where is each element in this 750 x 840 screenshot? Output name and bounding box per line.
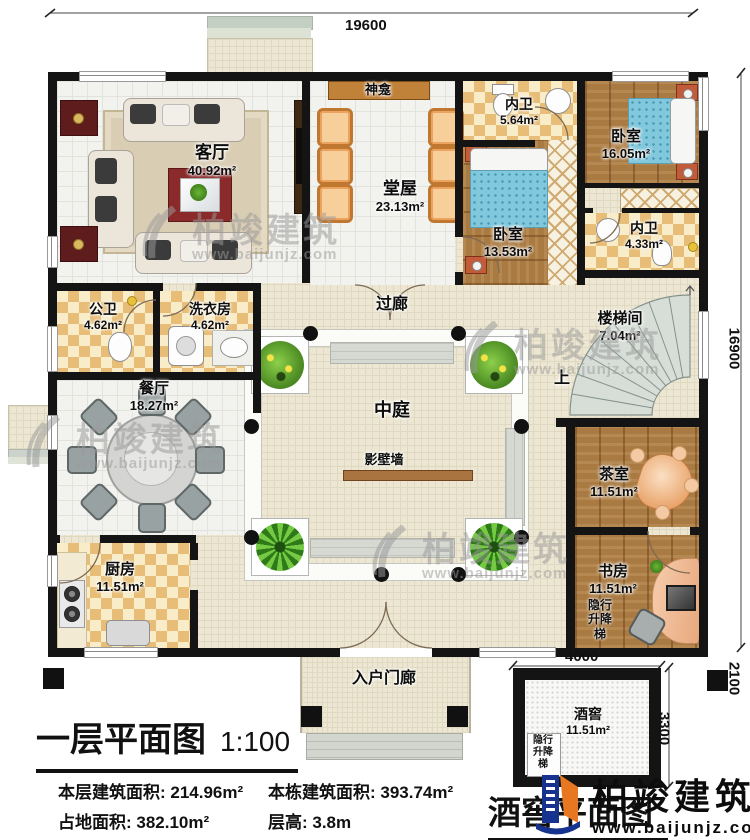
room-label-public-bath: 公卫 4.62m²: [67, 301, 139, 332]
room-name: 餐厅: [112, 380, 196, 398]
room-area: 11.51m²: [577, 581, 649, 596]
room-area: 4.62m²: [168, 318, 252, 332]
room-label-cellar: 酒窖 11.51m²: [550, 706, 626, 737]
room-area: 5.64m²: [483, 113, 555, 127]
room-label-hall: 堂屋 23.13m²: [345, 179, 455, 214]
elevator-line: 升降: [527, 747, 559, 759]
room-label-stairwell: 楼梯间 7.04m²: [580, 310, 660, 343]
brand-logo-url: www.baijunjz.com: [592, 818, 750, 838]
room-area: 13.53m²: [470, 244, 546, 259]
room-label-bedroom-right: 卧室 16.05m²: [588, 128, 664, 161]
room-area: 4.33m²: [608, 237, 680, 251]
room-area: 18.27m²: [112, 398, 196, 413]
room-label-bedroom-mid: 卧室 13.53m²: [470, 226, 546, 259]
room-name: 内卫: [608, 220, 680, 237]
brand-logo-text: 柏竣建筑: [592, 768, 750, 820]
room-name: 酒窖: [550, 706, 626, 723]
room-name: 公卫: [67, 301, 139, 318]
up-text: 上: [550, 370, 574, 389]
floor-plan-canvas: 客厅 40.92m² 神龛 堂屋 23.13m² 内卫 5.64m² 卧室 16…: [0, 0, 750, 840]
room-name: 过廊: [356, 296, 428, 315]
elevator-label-cellar: 隐行 升降 梯: [527, 735, 559, 771]
dim-top: 19600: [345, 17, 387, 34]
room-label-living: 客厅 40.92m²: [162, 143, 262, 178]
stat-total-area: 本栋建筑面积: 393.74m²: [268, 778, 453, 803]
room-name: 中庭: [356, 400, 428, 421]
page-title: 一层平面图: [36, 712, 206, 761]
room-label-screen-wall: 影壁墙: [345, 452, 423, 467]
stat-floor-height: 层高: 3.8m: [268, 808, 351, 833]
elevator-line: 隐行: [584, 598, 616, 612]
room-label-shrine: 神龛: [338, 82, 418, 97]
brand-logo-icon: [532, 771, 584, 835]
room-label-porch: 入户门廊: [328, 670, 440, 689]
room-area: 40.92m²: [162, 163, 262, 178]
room-label-corridor: 过廊: [356, 296, 428, 315]
room-area: 4.62m²: [67, 318, 139, 332]
room-name: 内卫: [483, 96, 555, 113]
room-area: 11.51m²: [78, 579, 162, 594]
room-name: 堂屋: [345, 179, 455, 199]
stat-land-area: 占地面积: 382.10m²: [58, 808, 209, 833]
stat-floor-area: 本层建筑面积: 214.96m²: [58, 778, 243, 803]
dim-right: 16900: [726, 327, 743, 371]
title-block: 一层平面图 1:100: [36, 712, 298, 773]
brand-logo: 柏竣建筑 www.baijunjz.com: [532, 768, 750, 838]
room-label-tea: 茶室 11.51m²: [576, 466, 652, 499]
room-name: 厨房: [78, 561, 162, 579]
room-label-ensuite-top: 内卫 5.64m²: [483, 96, 555, 127]
dim-cellar-height: 3300: [656, 707, 673, 751]
room-name: 卧室: [470, 226, 546, 244]
room-name: 客厅: [162, 143, 262, 163]
elevator-line: 升降: [584, 612, 616, 626]
elevator-line: 隐行: [527, 735, 559, 747]
spiral-stair: [570, 286, 694, 415]
room-area: 11.51m²: [550, 723, 626, 737]
room-label-study: 书房 11.51m²: [577, 563, 649, 596]
dim-cellar-width: 4000: [565, 648, 598, 665]
room-area: 16.05m²: [588, 146, 664, 161]
room-area: 7.04m²: [580, 328, 660, 343]
room-label-dining: 餐厅 18.27m²: [112, 380, 196, 413]
room-area: 23.13m²: [345, 199, 455, 214]
room-label-laundry: 洗衣房 4.62m²: [168, 301, 252, 332]
stair-up-label: 上: [550, 370, 574, 389]
room-name: 神龛: [338, 82, 418, 97]
room-name: 卧室: [588, 128, 664, 146]
plan-scale: 1:100: [220, 726, 290, 758]
room-label-kitchen: 厨房 11.51m²: [78, 561, 162, 594]
room-name: 影壁墙: [345, 452, 423, 467]
elevator-line: 梯: [584, 627, 616, 641]
elevator-label-study: 隐行 升降 梯: [584, 598, 616, 641]
room-name: 书房: [577, 563, 649, 581]
dim-cellar-depth: 2100: [726, 657, 743, 701]
room-label-atrium: 中庭: [356, 400, 428, 421]
room-label-ensuite-right: 内卫 4.33m²: [608, 220, 680, 251]
room-name: 楼梯间: [580, 310, 660, 328]
room-name: 洗衣房: [168, 301, 252, 318]
room-area: 11.51m²: [576, 484, 652, 499]
room-name: 茶室: [576, 466, 652, 484]
room-name: 入户门廊: [328, 670, 440, 689]
